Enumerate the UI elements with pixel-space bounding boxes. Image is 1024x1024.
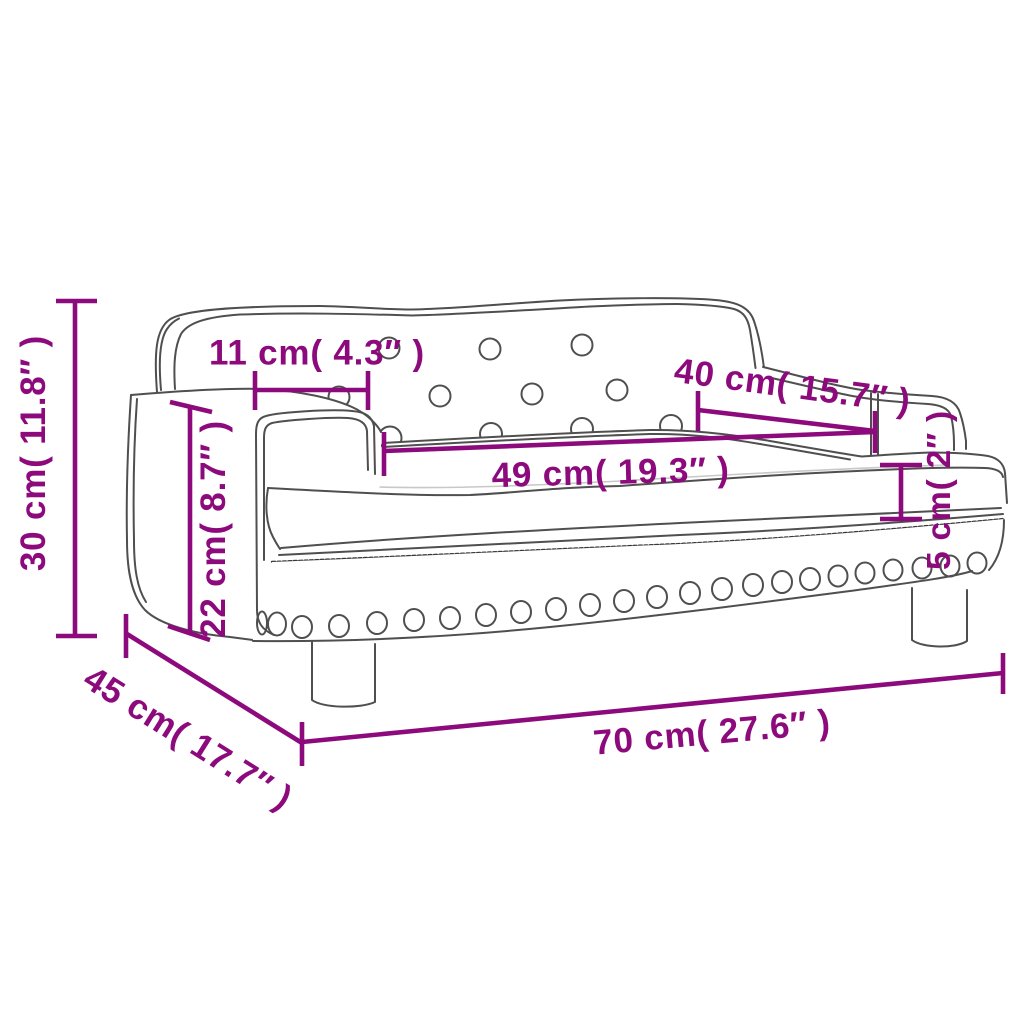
svg-text:22 cm( 8.7″ ): 22 cm( 8.7″ ) bbox=[194, 420, 233, 638]
svg-text:30 cm( 11.8″ ): 30 cm( 11.8″ ) bbox=[14, 335, 53, 571]
svg-text:49 cm( 19.3″ ): 49 cm( 19.3″ ) bbox=[491, 450, 730, 495]
svg-text:5 cm( 2″ ): 5 cm( 2″ ) bbox=[921, 410, 958, 570]
svg-text:11 cm( 4.3″ ): 11 cm( 4.3″ ) bbox=[209, 334, 425, 373]
